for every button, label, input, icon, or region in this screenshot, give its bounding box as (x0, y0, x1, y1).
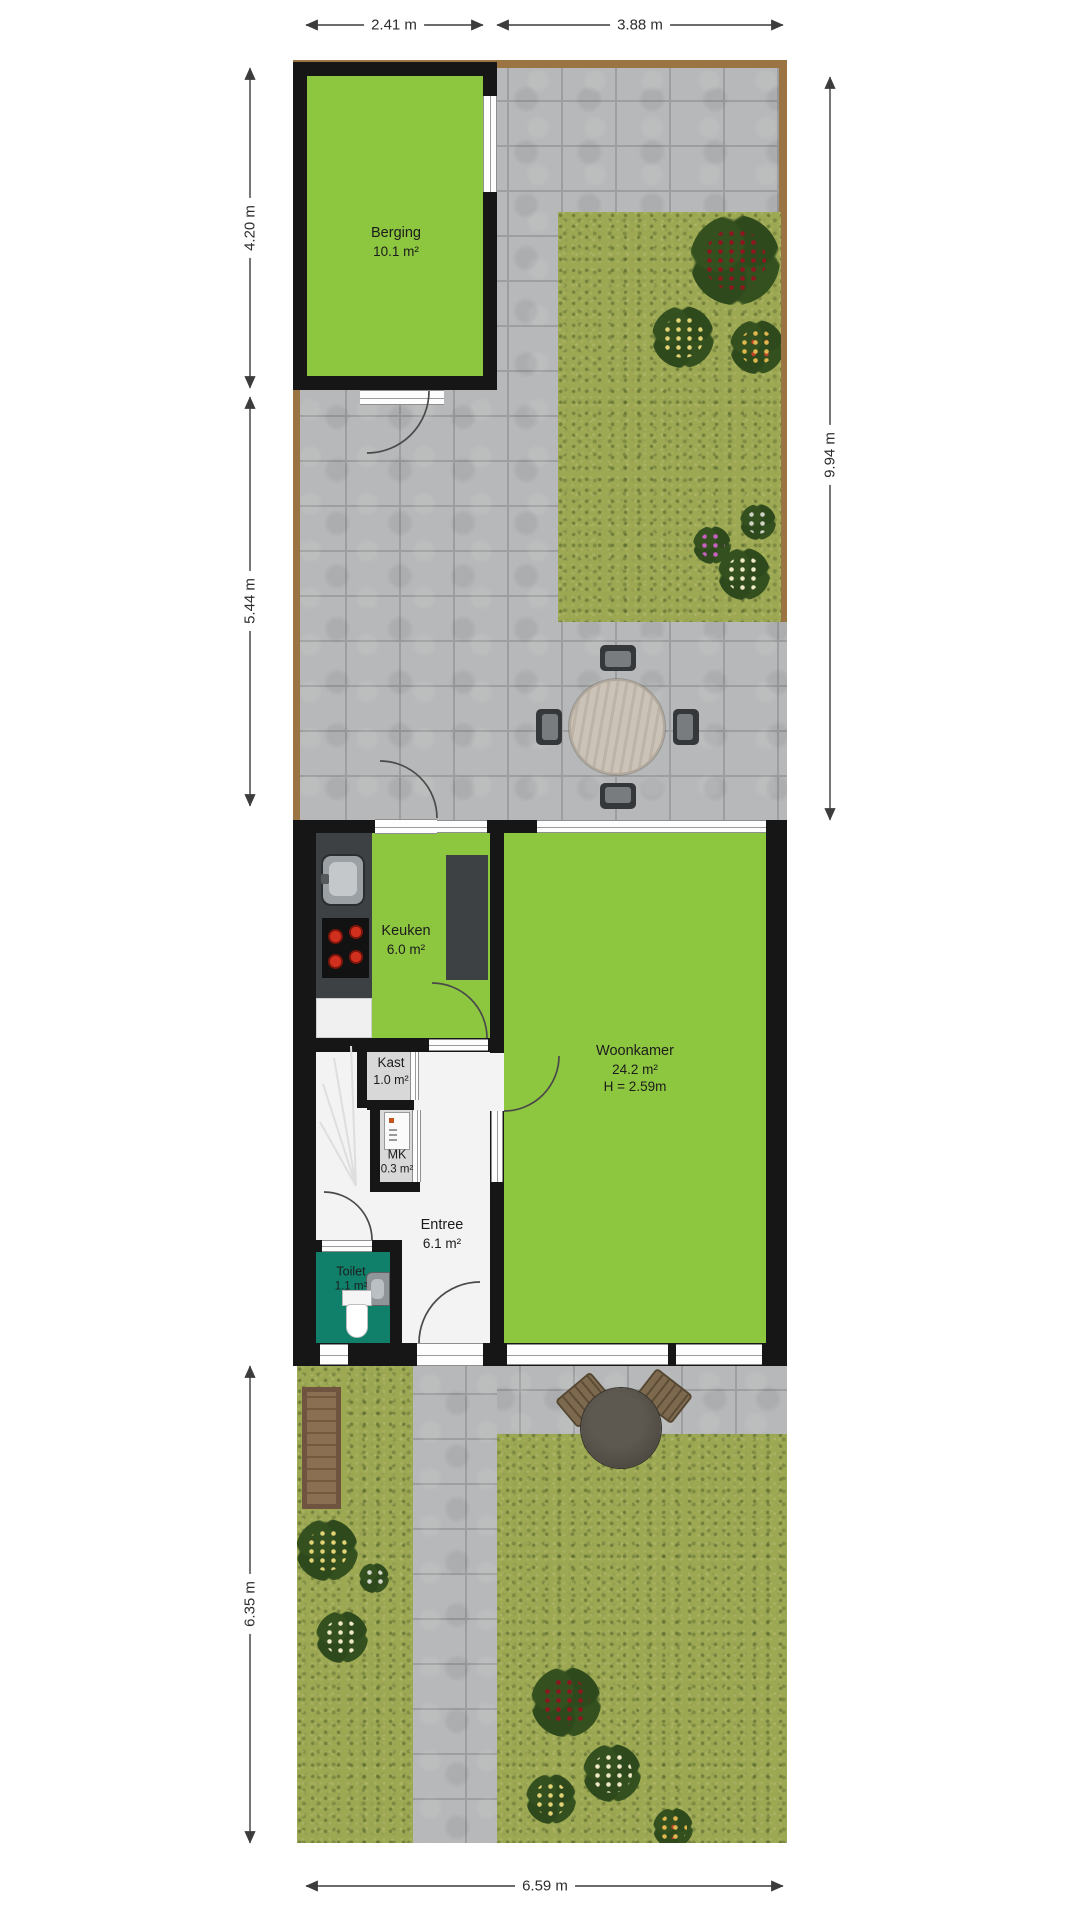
dim-left-middle: 5.44 m (242, 571, 259, 631)
annotation-overlay (0, 0, 1080, 1920)
garden-door-arc (380, 761, 437, 818)
room-label-toilet: Toilet1.1 m² (335, 1263, 368, 1294)
dim-left-upper: 4.20 m (242, 198, 259, 258)
room-label-kast: Kast1.0 m² (373, 1054, 408, 1088)
room-label-woonkamer: Woonkamer 24.2 m² H = 2.59m (596, 1042, 674, 1096)
room-label-berging: Berging10.1 m² (371, 224, 421, 260)
room-label-keuken: Keuken6.0 m² (381, 922, 430, 958)
woonkamer-door-arc (504, 1056, 559, 1111)
floorplan-canvas: 2.41 m 3.88 m 4.20 m 5.44 m 6.35 m 9.94 … (0, 0, 1080, 1920)
door-arcs (324, 391, 559, 1343)
dim-top-left: 2.41 m (364, 17, 424, 34)
dimension-lines (250, 25, 830, 1886)
dim-bottom: 6.59 m (515, 1878, 575, 1895)
front-door-arc (419, 1282, 480, 1343)
dim-right-side: 9.94 m (822, 425, 839, 485)
room-label-mk: MK0.3 m² (381, 1146, 414, 1177)
stairs-icon (320, 1046, 356, 1186)
dim-top-right: 3.88 m (610, 17, 670, 34)
room-label-entree: Entree6.1 m² (421, 1216, 464, 1252)
keuken-door-arc (432, 983, 487, 1038)
dim-left-lower: 6.35 m (242, 1574, 259, 1634)
berging-door-arc (367, 391, 429, 453)
toilet-door-arc (324, 1192, 372, 1240)
